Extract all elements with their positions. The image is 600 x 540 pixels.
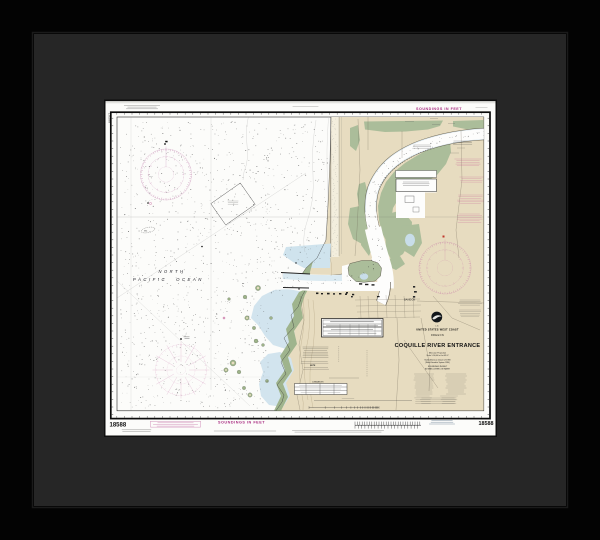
svg-text:Mercator Projection: Mercator Projection: [429, 351, 446, 354]
svg-text:SOUNDINGS IN FEET: SOUNDINGS IN FEET: [218, 420, 265, 424]
svg-text:18588: 18588: [110, 423, 127, 429]
svg-text:OREGON: OREGON: [431, 335, 444, 337]
svg-text:AT MEAN LOWER LOW WATER: AT MEAN LOWER LOW WATER: [425, 367, 450, 370]
svg-text:(World Geodetic System 1984): (World Geodetic System 1984): [425, 361, 450, 364]
svg-text:UNITED STATES WEST COAST: UNITED STATES WEST COAST: [416, 329, 459, 332]
svg-text:COQUILLE RIVER ENTRANCE: COQUILLE RIVER ENTRANCE: [395, 343, 481, 349]
svg-text:SOUNDINGS IN FEET: SOUNDINGS IN FEET: [416, 107, 462, 111]
svg-text:PACIFIC: PACIFIC: [133, 277, 167, 282]
svg-text:C 45: C 45: [435, 326, 438, 328]
svg-text:NOTE: NOTE: [310, 365, 316, 367]
svg-text:OCEAN: OCEAN: [176, 277, 204, 282]
svg-text:NORTH: NORTH: [159, 269, 186, 274]
svg-text:Scale 1:10,000 at Lat 43 07: Scale 1:10,000 at Lat 43 07: [427, 354, 449, 357]
svg-text:BANDON: BANDON: [404, 299, 416, 302]
svg-text:CLEARANCES: CLEARANCES: [312, 380, 324, 383]
svg-text:18588: 18588: [479, 421, 494, 427]
